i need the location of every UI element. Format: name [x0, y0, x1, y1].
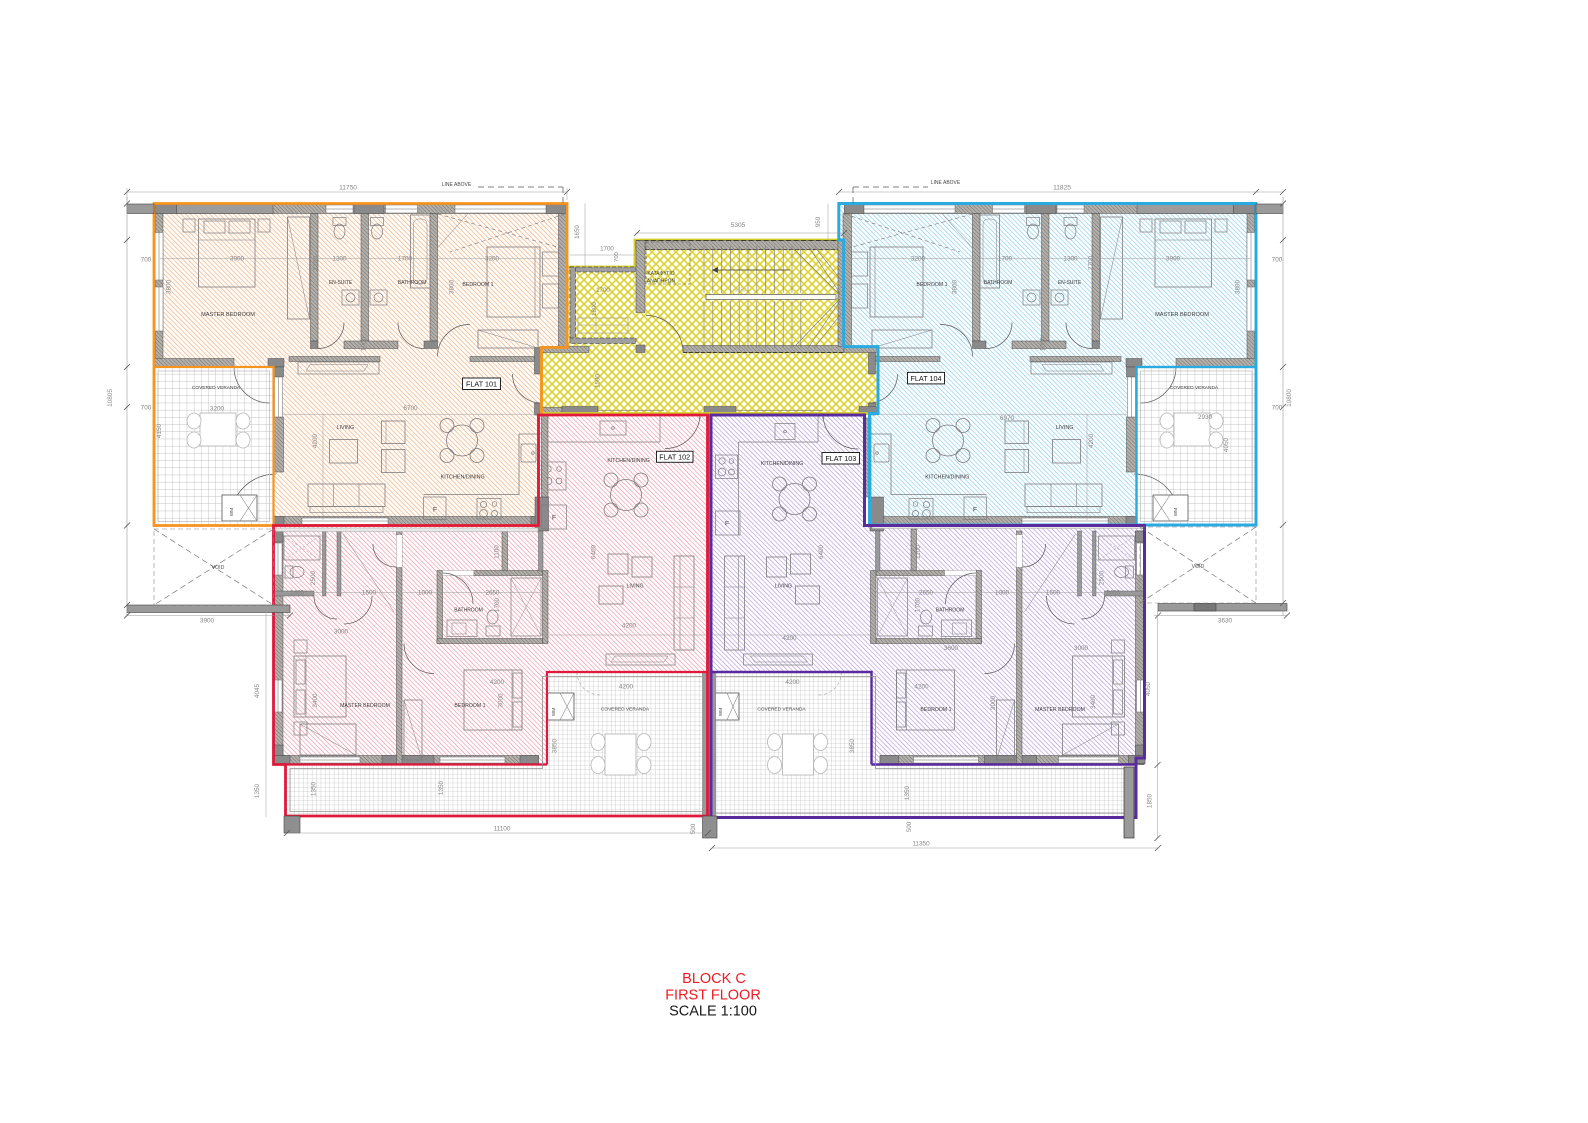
svg-text:2650: 2650 [485, 590, 500, 597]
svg-text:3200: 3200 [911, 256, 926, 263]
svg-text:2500: 2500 [1099, 570, 1106, 585]
svg-text:1000: 1000 [418, 590, 433, 597]
svg-text:6970: 6970 [1000, 415, 1015, 422]
svg-text:4200: 4200 [1088, 433, 1095, 448]
svg-text:LINE ABOVE: LINE ABOVE [442, 182, 472, 188]
svg-text:3000: 3000 [334, 629, 349, 636]
svg-text:11825: 11825 [1053, 185, 1071, 192]
svg-text:BATHROOM: BATHROOM [398, 280, 427, 286]
svg-text:3800: 3800 [449, 279, 456, 294]
svg-text:FIRST FLOOR: FIRST FLOOR [665, 988, 761, 1004]
svg-text:3200: 3200 [485, 256, 500, 263]
svg-text:ΑΝΑΠΗΡΩΝ: ΑΝΑΠΗΡΩΝ [647, 279, 676, 285]
svg-text:WM: WM [229, 508, 234, 516]
svg-text:1350: 1350 [438, 780, 445, 795]
svg-text:MASTER BEDROOM: MASTER BEDROOM [201, 312, 255, 318]
svg-text:2930: 2930 [1198, 414, 1213, 421]
svg-text:FLAT 103: FLAT 103 [825, 454, 856, 463]
svg-text:3900: 3900 [200, 618, 215, 625]
svg-text:5130: 5130 [734, 288, 745, 294]
svg-text:1300: 1300 [1063, 256, 1078, 263]
svg-text:11350: 11350 [912, 841, 930, 848]
svg-text:EN-SUITE: EN-SUITE [329, 280, 353, 286]
svg-text:10800: 10800 [1286, 389, 1293, 407]
svg-text:700: 700 [1272, 257, 1283, 264]
svg-text:4200: 4200 [490, 679, 505, 686]
svg-text:3600: 3600 [944, 645, 959, 652]
svg-text:4200: 4200 [782, 635, 797, 642]
svg-text:1700: 1700 [998, 256, 1013, 263]
svg-text:1000: 1000 [995, 590, 1010, 597]
svg-text:4150: 4150 [156, 423, 163, 438]
svg-text:3000: 3000 [1074, 645, 1089, 652]
svg-text:1700: 1700 [915, 597, 922, 612]
svg-text:4200: 4200 [619, 684, 634, 691]
svg-text:EN-SUITE: EN-SUITE [1058, 280, 1082, 286]
svg-text:2700: 2700 [1088, 255, 1095, 270]
svg-text:SCALE 1:100: SCALE 1:100 [669, 1004, 757, 1020]
svg-text:BEDROOM 1: BEDROOM 1 [916, 282, 947, 288]
svg-text:3850: 3850 [552, 738, 559, 753]
svg-text:BATHROOM: BATHROOM [454, 608, 483, 614]
svg-text:VOID: VOID [1192, 564, 1205, 570]
svg-text:KITCHEN/DINING: KITCHEN/DINING [441, 475, 485, 481]
svg-text:3630: 3630 [1218, 618, 1233, 625]
svg-text:4200: 4200 [622, 623, 637, 630]
svg-text:1350: 1350 [904, 785, 911, 800]
svg-text:COVERED VERANDA: COVERED VERANDA [601, 707, 650, 713]
svg-text:1700: 1700 [600, 246, 614, 253]
svg-text:ΚΑΤΑΦΥΓΙΟ: ΚΑΤΑΦΥΓΙΟ [647, 271, 674, 277]
svg-text:5305: 5305 [731, 222, 746, 229]
svg-text:3800: 3800 [166, 279, 173, 294]
svg-text:1000: 1000 [361, 336, 368, 351]
svg-text:4050: 4050 [1145, 681, 1152, 696]
svg-text:BATHROOM: BATHROOM [984, 280, 1013, 286]
svg-text:1500: 1500 [362, 590, 377, 597]
svg-text:11750: 11750 [339, 185, 357, 192]
svg-text:WM: WM [551, 708, 556, 716]
svg-text:COVERED VERANDA: COVERED VERANDA [1170, 385, 1219, 391]
svg-text:1500: 1500 [1046, 590, 1061, 597]
svg-text:LIVING: LIVING [1056, 425, 1074, 431]
svg-text:WM: WM [1173, 508, 1178, 516]
svg-text:COVERED VERANDA: COVERED VERANDA [757, 707, 806, 713]
svg-text:LIVING: LIVING [337, 425, 355, 431]
svg-text:LIVING: LIVING [626, 584, 643, 590]
svg-text:1700: 1700 [398, 256, 413, 263]
svg-text:1650: 1650 [574, 225, 581, 239]
svg-text:1700: 1700 [494, 597, 501, 612]
svg-text:10805: 10805 [107, 389, 114, 407]
svg-text:MASTER BEDROOM: MASTER BEDROOM [340, 703, 390, 709]
svg-text:WM: WM [718, 708, 723, 716]
svg-text:KITCHEN/DINING: KITCHEN/DINING [607, 458, 649, 464]
svg-text:F: F [552, 515, 556, 522]
svg-text:BEDROOM 1: BEDROOM 1 [920, 707, 951, 713]
svg-text:3000: 3000 [498, 693, 505, 708]
svg-text:1350: 1350 [311, 781, 318, 796]
svg-text:700: 700 [141, 257, 152, 264]
svg-text:3800: 3800 [952, 279, 959, 294]
svg-text:4200: 4200 [312, 433, 319, 448]
svg-text:700: 700 [141, 405, 152, 412]
svg-text:BEDROOM 1: BEDROOM 1 [454, 703, 485, 709]
svg-text:1700: 1700 [596, 287, 610, 294]
svg-text:F: F [725, 521, 729, 528]
svg-text:3400: 3400 [1090, 694, 1097, 709]
svg-text:FLAT 104: FLAT 104 [911, 374, 942, 383]
svg-text:700: 700 [614, 252, 620, 262]
svg-text:LINE ABOVE: LINE ABOVE [931, 180, 961, 186]
svg-text:4050: 4050 [1223, 437, 1230, 452]
svg-text:4200: 4200 [785, 679, 800, 686]
svg-text:KITCHEN/DINING: KITCHEN/DINING [761, 461, 803, 467]
svg-text:1400: 1400 [290, 590, 305, 597]
svg-text:6700: 6700 [403, 405, 418, 412]
svg-text:1800: 1800 [591, 302, 598, 316]
svg-text:4200: 4200 [914, 684, 929, 691]
svg-text:VOID: VOID [212, 565, 225, 571]
svg-text:1100: 1100 [494, 545, 501, 559]
svg-text:BLOCK C: BLOCK C [682, 971, 746, 987]
svg-text:6400: 6400 [818, 544, 825, 559]
svg-text:3400: 3400 [312, 693, 319, 708]
svg-text:2500: 2500 [310, 570, 317, 585]
svg-text:500: 500 [906, 821, 913, 832]
svg-text:F: F [973, 507, 977, 514]
svg-text:11100: 11100 [494, 826, 511, 833]
svg-text:3800: 3800 [1235, 279, 1242, 294]
svg-text:3000: 3000 [990, 695, 997, 710]
svg-text:COVERED VERANDA: COVERED VERANDA [192, 385, 241, 391]
svg-text:BATHROOM: BATHROOM [936, 608, 965, 614]
svg-text:6400: 6400 [591, 544, 598, 559]
svg-text:BEDROOM 1: BEDROOM 1 [462, 282, 493, 288]
svg-text:KITCHEN/DINING: KITCHEN/DINING [925, 475, 969, 481]
svg-text:3850: 3850 [849, 738, 856, 753]
svg-text:FLAT 102: FLAT 102 [659, 453, 690, 462]
svg-text:1850: 1850 [1147, 793, 1154, 808]
svg-text:2700: 2700 [313, 255, 320, 270]
svg-text:MASTER BEDROOM: MASTER BEDROOM [1035, 707, 1085, 713]
svg-text:3200: 3200 [210, 406, 225, 413]
svg-text:3900: 3900 [230, 256, 245, 263]
svg-text:700: 700 [1272, 405, 1283, 412]
svg-text:1100: 1100 [915, 545, 922, 559]
svg-text:1350: 1350 [254, 783, 261, 798]
svg-text:LIVING: LIVING [775, 584, 792, 590]
svg-text:500: 500 [690, 823, 697, 834]
svg-text:3900: 3900 [1166, 256, 1181, 263]
svg-text:2650: 2650 [919, 590, 934, 597]
svg-text:1400: 1400 [1106, 590, 1121, 597]
svg-text:1000: 1000 [1040, 336, 1047, 351]
svg-text:950: 950 [815, 216, 822, 227]
svg-text:FLAT 101: FLAT 101 [466, 380, 497, 389]
svg-text:1300: 1300 [332, 256, 347, 263]
svg-text:4045: 4045 [254, 683, 261, 698]
svg-text:F: F [433, 507, 437, 514]
svg-text:MASTER BEDROOM: MASTER BEDROOM [1155, 312, 1209, 318]
svg-text:1500: 1500 [595, 374, 602, 388]
